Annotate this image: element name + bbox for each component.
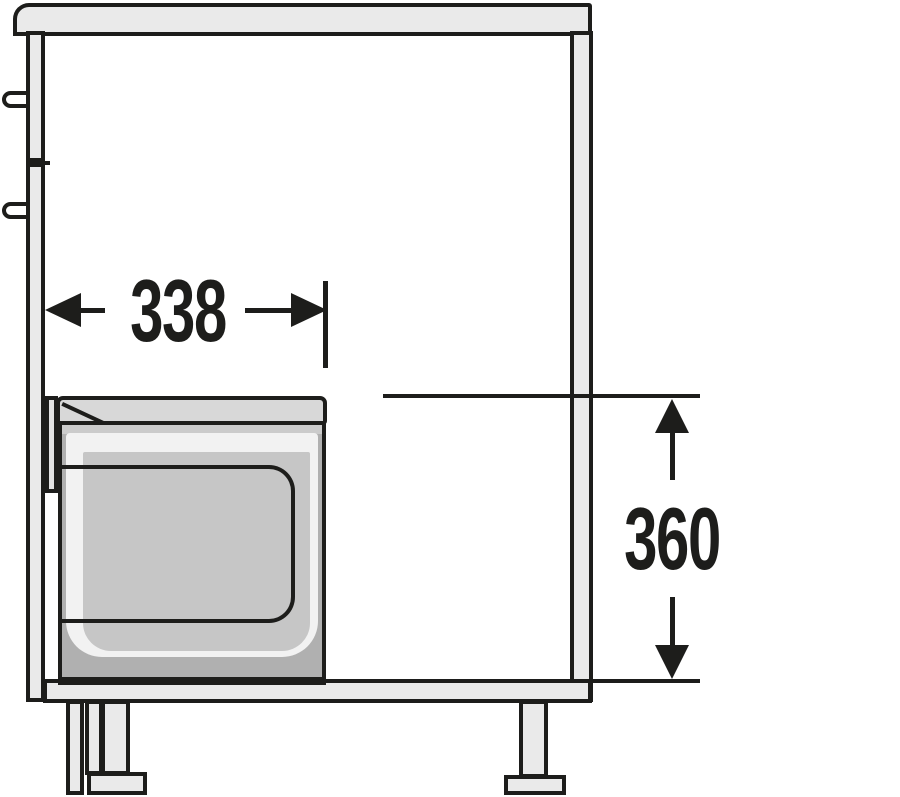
door-divider-tick (44, 161, 50, 165)
leveling-foot-right (504, 775, 566, 795)
width-dim-arrow-right (291, 293, 327, 327)
cabinet-leg-right-post (519, 700, 548, 778)
height-dim-line-upper (670, 431, 675, 480)
technical-drawing: 338 360 (0, 0, 900, 797)
width-dim-line-left (78, 308, 105, 313)
waste-bin-body (58, 421, 326, 685)
right-side-panel (570, 31, 593, 702)
height-dim-label: 360 (618, 495, 727, 583)
width-dim-extension-tick (323, 281, 328, 368)
left-side-panel (26, 31, 45, 702)
width-dim-label: 338 (124, 267, 233, 355)
leveling-foot-left (87, 772, 147, 795)
height-dim-arrow-down (655, 645, 689, 679)
height-dim-extension-bottom (573, 679, 700, 683)
door-divider (26, 158, 45, 167)
inner-bucket-outline (62, 465, 295, 623)
height-dim-arrow-up (655, 399, 689, 433)
width-dim-arrow-left (45, 293, 81, 327)
cabinet-leg-left-post (101, 700, 130, 775)
height-dim-extension-top (383, 394, 700, 398)
height-dim-line-lower (670, 597, 675, 645)
mounting-bracket (45, 396, 58, 493)
width-dim-line-right (245, 308, 293, 313)
cabinet-leg-left-outer (66, 700, 84, 795)
countertop (13, 3, 592, 36)
